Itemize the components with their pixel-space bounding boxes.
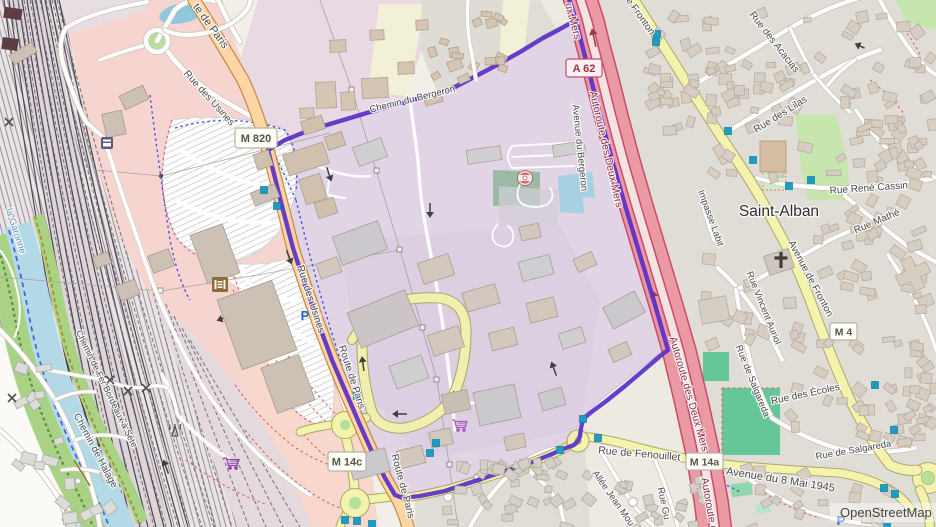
svg-text:OpenStreetMap: OpenStreetMap [840, 505, 932, 520]
svg-text:M 820: M 820 [241, 133, 272, 145]
svg-text:A 62: A 62 [573, 63, 596, 75]
svg-text:M 14a: M 14a [690, 456, 719, 468]
svg-text:M 14c: M 14c [332, 456, 363, 468]
svg-text:M 4: M 4 [835, 326, 853, 338]
svg-text:Saint-Alban: Saint-Alban [739, 203, 819, 220]
